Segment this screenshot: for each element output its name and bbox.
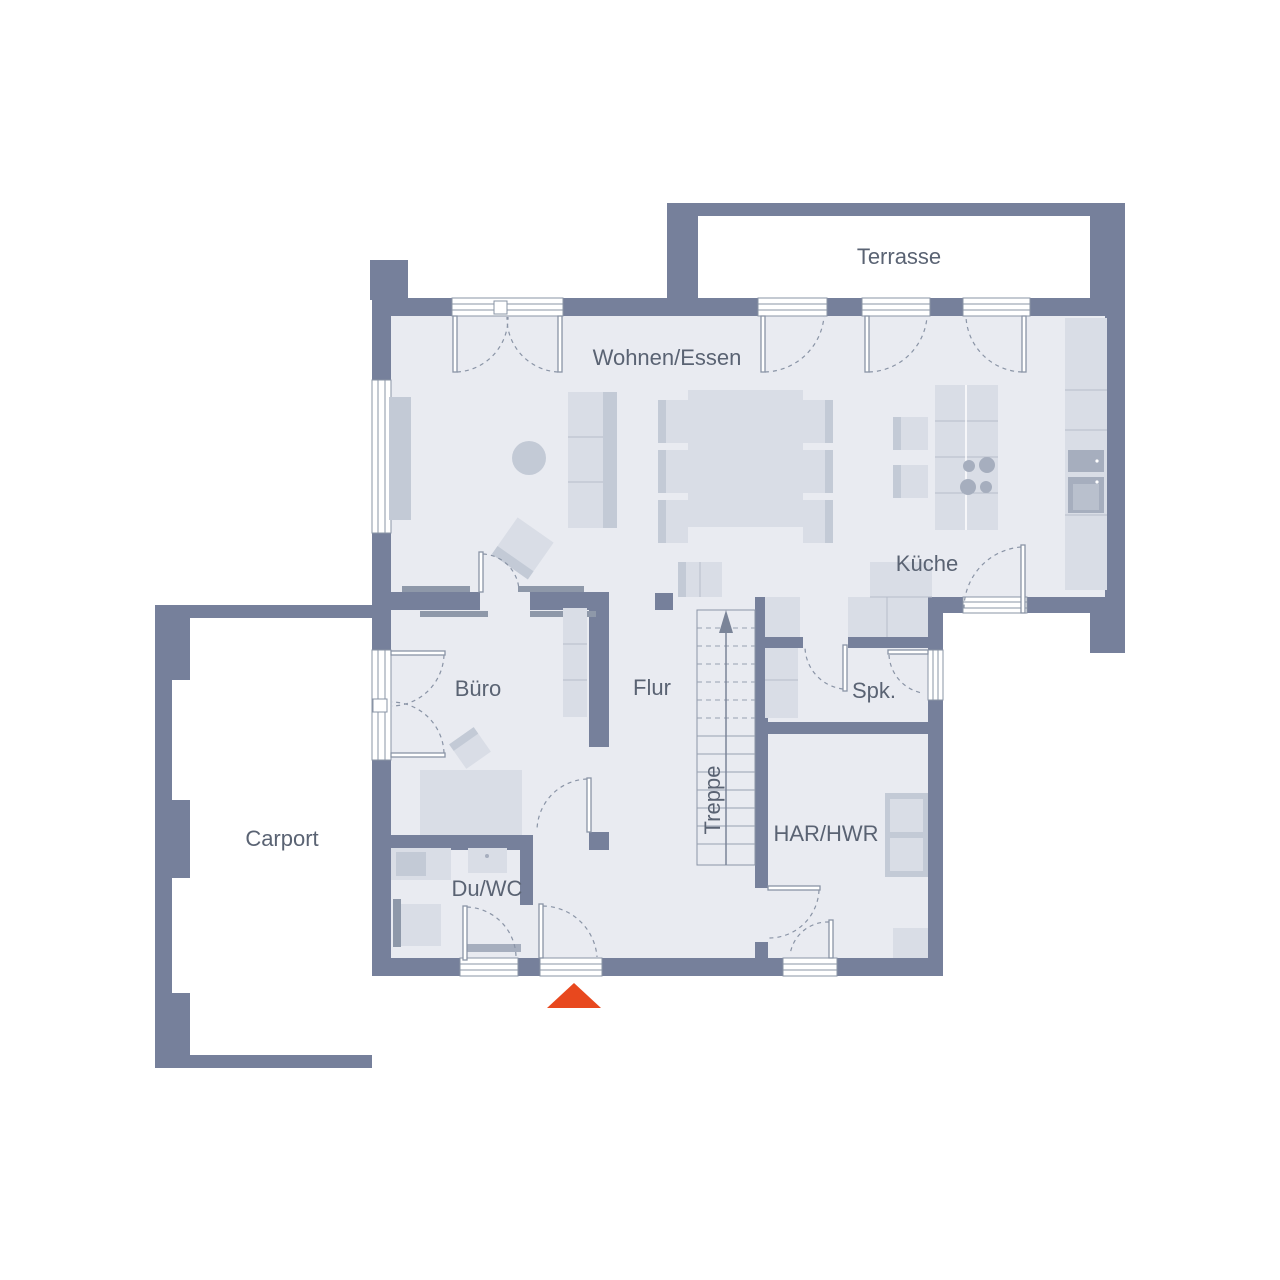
buero-french-door-band <box>372 650 391 760</box>
terrace-top-wall <box>667 203 1122 216</box>
label-spk: Spk. <box>852 678 896 703</box>
label-du-wc: Du/WC <box>452 876 523 901</box>
carport-pillar <box>155 993 190 1068</box>
kitchen-counter <box>1065 318 1107 590</box>
wohnen-buero-doorway <box>480 592 530 610</box>
terrace-door-band <box>963 298 1030 316</box>
shower <box>393 899 441 947</box>
living-window <box>372 380 391 533</box>
door-handle <box>373 699 387 712</box>
floor-plan-page: Terrasse Wohnen/Essen Küche Büro Flur Sp… <box>0 0 1280 1280</box>
carport-pillar <box>155 605 190 680</box>
sideboard <box>402 586 470 592</box>
terrace-door-band <box>862 298 930 316</box>
top-left-wall-stub <box>370 260 408 300</box>
kitchen-spk-doorway <box>803 637 848 648</box>
buero-flur-doorway <box>589 747 609 832</box>
stair-wall-stub <box>755 942 768 958</box>
office-shelf <box>563 608 587 717</box>
buero-flur-wall-stub <box>589 832 609 850</box>
spk-door-band <box>928 650 943 700</box>
utility-cabinet <box>893 928 928 958</box>
label-har-hwr: HAR/HWR <box>773 821 878 846</box>
dining-table <box>688 390 803 527</box>
flur-har-doorway <box>755 888 768 942</box>
duwc-window <box>460 958 518 976</box>
toilet <box>468 848 507 873</box>
label-carport: Carport <box>245 826 318 851</box>
buero-flur-wall <box>589 610 609 747</box>
coffee-table <box>512 441 546 475</box>
duwc-north-wall <box>391 835 533 850</box>
desk <box>420 770 522 835</box>
carport-pillar <box>155 800 190 878</box>
hall-sideboard <box>678 562 722 597</box>
entrance-door-band <box>540 958 602 976</box>
label-buero: Büro <box>455 676 501 701</box>
kitchen-corner-wall <box>1090 597 1105 653</box>
bathroom-sink <box>391 848 451 880</box>
right-wall <box>1105 298 1125 653</box>
tv-board <box>568 392 617 528</box>
sideboard <box>420 611 488 617</box>
floor-plan: Terrasse Wohnen/Essen Küche Büro Flur Sp… <box>0 0 1280 1280</box>
label-kueche: Küche <box>896 551 958 576</box>
terrace-left-wall <box>667 203 698 298</box>
sofa <box>389 397 411 520</box>
stairtop-wall-stub <box>655 593 673 610</box>
duwc-doorway <box>520 905 533 958</box>
label-wohnen-essen: Wohnen/Essen <box>593 345 742 370</box>
label-flur: Flur <box>633 675 671 700</box>
entrance-marker <box>547 983 601 1008</box>
kitchen-island <box>935 385 998 530</box>
dining-chairs-right <box>803 400 833 543</box>
label-treppe: Treppe <box>700 766 725 835</box>
door-handle <box>494 301 507 314</box>
kitchen-door-band <box>963 597 1027 613</box>
radiator <box>465 944 521 952</box>
stair-wall <box>755 597 768 888</box>
spk-south-wall <box>755 722 943 734</box>
kitchen-cabinet <box>765 597 800 637</box>
terrace-door-band <box>758 298 827 316</box>
pantry-shelf <box>765 648 798 718</box>
dining-chairs-left <box>658 400 688 543</box>
french-door-band <box>452 298 563 316</box>
bottom-wall <box>372 958 943 976</box>
har-door-band <box>783 958 837 976</box>
washer-dryer <box>885 793 928 877</box>
label-terrasse: Terrasse <box>857 244 941 269</box>
sideboard <box>518 586 584 592</box>
